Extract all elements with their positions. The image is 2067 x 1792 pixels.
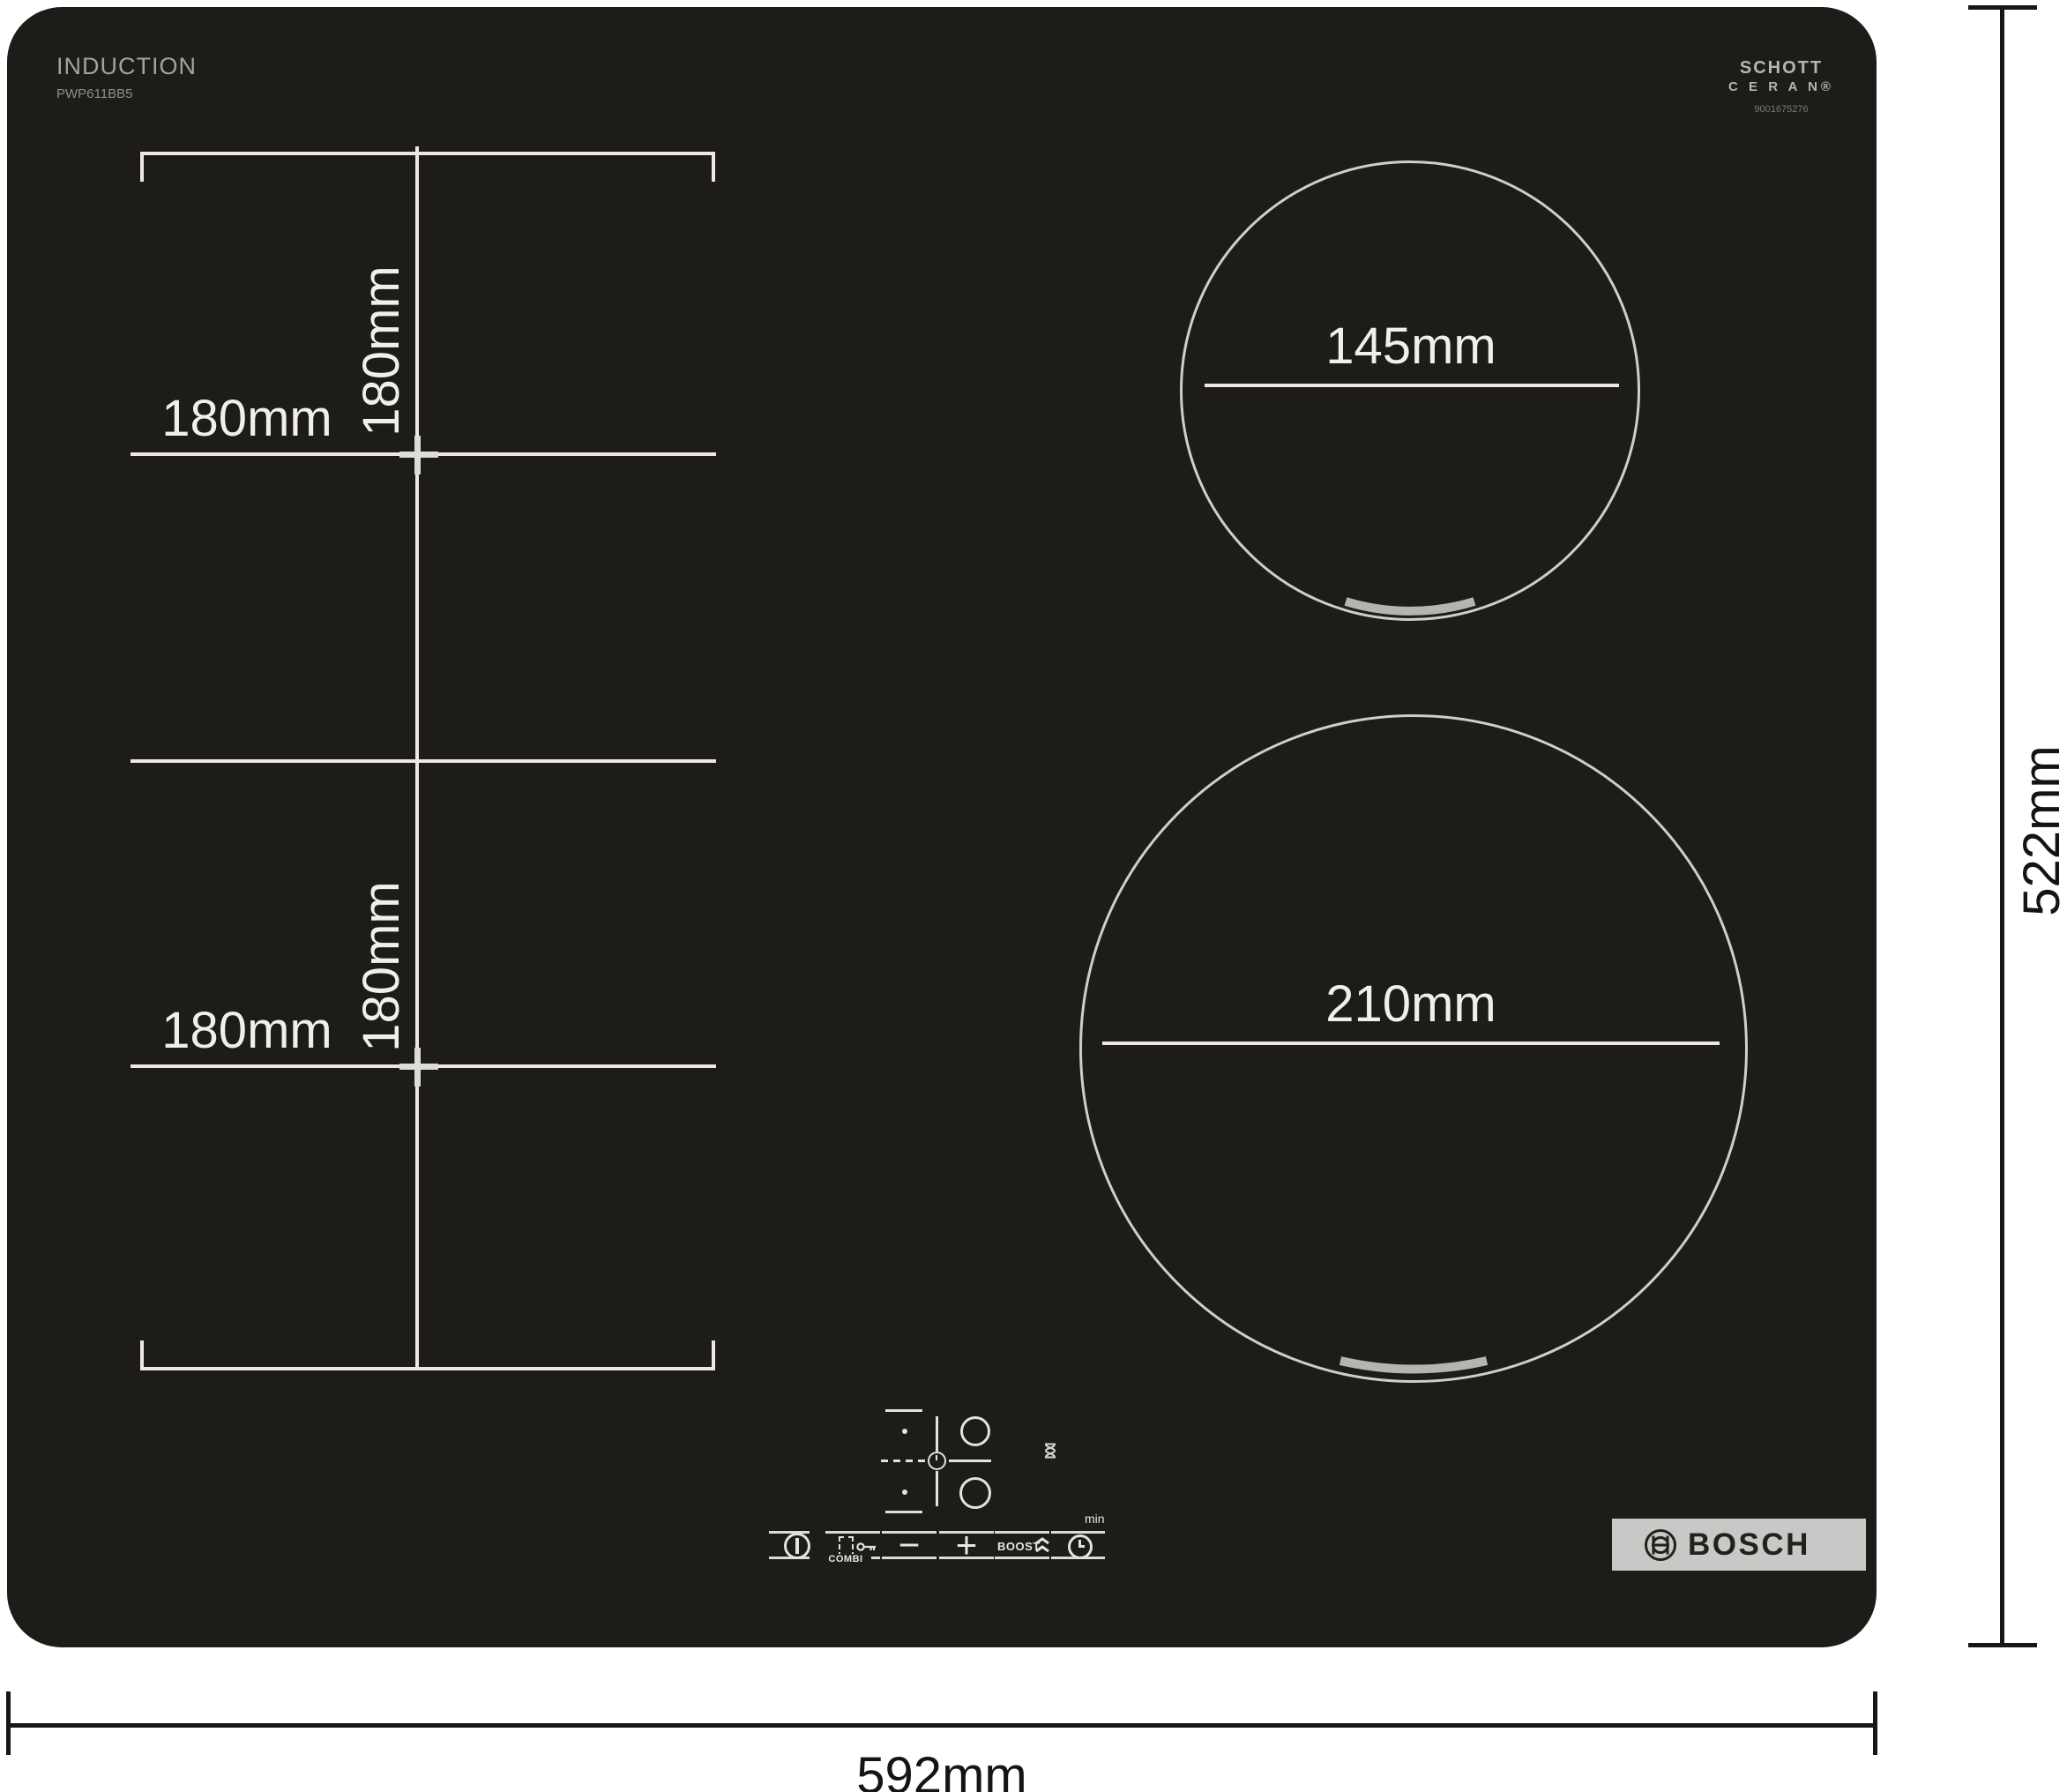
mimic-left-zone-top-dot bbox=[902, 1429, 907, 1434]
plus-key: + bbox=[939, 1524, 994, 1566]
bosch-logo-badge: BOSCH bbox=[1612, 1519, 1866, 1571]
model-number-label: PWP611BB5 bbox=[56, 86, 132, 101]
timer-clock-hand-h bbox=[1078, 1545, 1085, 1548]
flex-top-bracket-right-tick bbox=[712, 152, 715, 182]
flex-top-bracket-left-tick bbox=[140, 152, 144, 182]
large-burner-diameter-label: 210mm bbox=[1309, 978, 1513, 1031]
schott-logo-line2: C E R A N® bbox=[1727, 79, 1836, 94]
flex-bottom-depth-label: 180mm bbox=[355, 825, 408, 1108]
mimic-clock-hand bbox=[936, 1455, 937, 1460]
small-burner-diameter-line bbox=[1205, 384, 1619, 387]
glass-code-label: 9001675276 bbox=[1727, 104, 1836, 115]
flex-top-bracket-line bbox=[140, 152, 715, 155]
flex-top-depth-label: 180mm bbox=[355, 210, 408, 492]
mimic-large-burner-circle bbox=[959, 1477, 991, 1509]
mimic-right-line bbox=[949, 1460, 991, 1462]
mimic-left-zone-bottom-line bbox=[885, 1511, 922, 1513]
flex-middle-divider-line bbox=[131, 759, 716, 763]
hourglass-icon bbox=[1043, 1443, 1057, 1459]
width-dimension-line bbox=[6, 1723, 1877, 1728]
flex-bottom-bracket-line bbox=[140, 1367, 715, 1370]
mimic-dashed-line bbox=[881, 1460, 930, 1462]
power-icon-bar bbox=[795, 1538, 799, 1554]
control-cell-border bbox=[995, 1531, 1049, 1534]
induction-type-label: INDUCTION bbox=[56, 53, 197, 80]
flex-bottom-bracket-left-tick bbox=[140, 1340, 144, 1370]
width-dimension-label: 592mm bbox=[810, 1750, 1074, 1792]
control-cell-border bbox=[825, 1531, 880, 1534]
depth-dimension-bottom-tick bbox=[1968, 1643, 2037, 1647]
minus-key: − bbox=[882, 1524, 936, 1566]
width-dimension-right-tick bbox=[1873, 1691, 1877, 1755]
flex-bottom-width-label: 180mm bbox=[148, 1004, 346, 1057]
flex-top-cross-marker-v bbox=[414, 436, 421, 474]
combi-label: COMBI bbox=[820, 1554, 871, 1564]
flex-bottom-bracket-right-tick bbox=[712, 1340, 715, 1370]
mimic-vertical-line-lower bbox=[936, 1471, 938, 1506]
product-dimension-diagram: INDUCTION PWP611BB5 SCHOTT C E R A N® 90… bbox=[0, 0, 2067, 1792]
small-burner-diameter-label: 145mm bbox=[1309, 320, 1513, 373]
depth-dimension-top-tick bbox=[1968, 5, 2037, 10]
bosch-logo-text: BOSCH bbox=[1688, 1527, 1810, 1563]
control-cell-border bbox=[769, 1531, 810, 1534]
key-icon bbox=[856, 1542, 877, 1555]
mimic-vertical-line-upper bbox=[936, 1416, 938, 1452]
control-cell-border bbox=[1051, 1531, 1105, 1534]
mimic-left-zone-top-line bbox=[885, 1409, 922, 1412]
flex-bottom-cross-marker-v bbox=[414, 1048, 421, 1086]
depth-dimension-label: 522mm bbox=[2016, 698, 2067, 963]
small-burner-front-arc bbox=[1180, 161, 1640, 621]
width-dimension-left-tick bbox=[6, 1691, 11, 1755]
control-cell-border bbox=[995, 1557, 1049, 1559]
flex-vertical-center-line bbox=[415, 146, 419, 1370]
flex-top-width-label: 180mm bbox=[148, 392, 346, 445]
mimic-small-burner-circle bbox=[960, 1416, 990, 1446]
large-burner-diameter-line bbox=[1102, 1042, 1720, 1045]
boost-chevrons-icon bbox=[1033, 1535, 1051, 1555]
schott-logo-line1: SCHOTT bbox=[1727, 58, 1836, 78]
depth-dimension-line bbox=[2000, 5, 2004, 1647]
large-burner-front-arc bbox=[1079, 714, 1748, 1383]
bosch-armature-icon bbox=[1644, 1528, 1677, 1562]
mimic-left-zone-bottom-dot bbox=[902, 1490, 907, 1495]
min-unit-label: min bbox=[1085, 1512, 1105, 1526]
